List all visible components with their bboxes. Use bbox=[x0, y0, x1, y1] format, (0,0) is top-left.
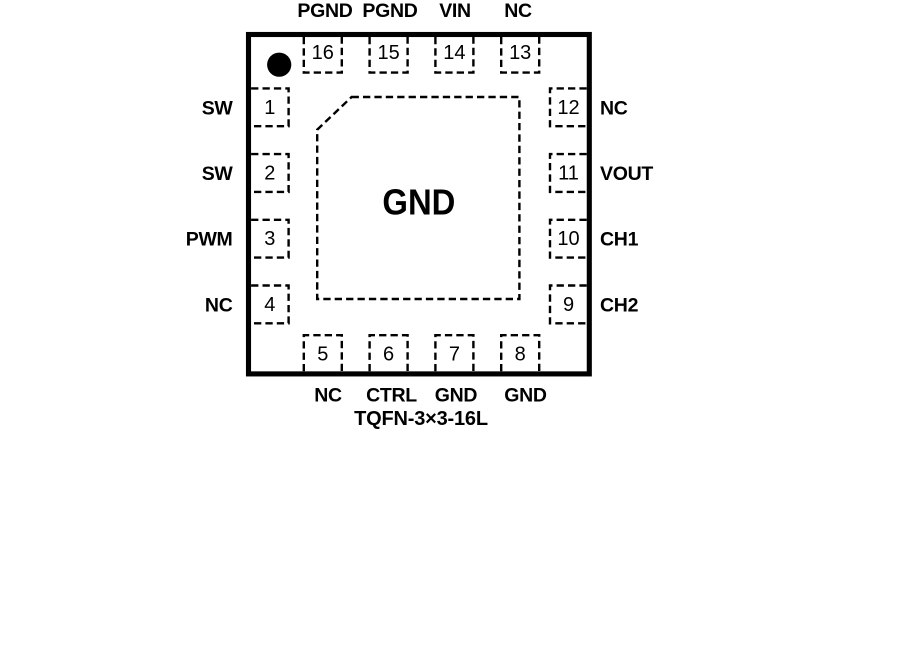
svg-text:SW: SW bbox=[202, 97, 234, 119]
svg-text:CH2: CH2 bbox=[600, 294, 639, 316]
svg-text:PGND: PGND bbox=[297, 0, 352, 22]
svg-text:10: 10 bbox=[557, 228, 579, 250]
svg-text:CTRL: CTRL bbox=[366, 385, 417, 407]
svg-text:11: 11 bbox=[558, 163, 579, 185]
svg-text:NC: NC bbox=[600, 97, 628, 119]
svg-text:NC: NC bbox=[314, 385, 342, 407]
svg-text:PWM: PWM bbox=[186, 229, 233, 251]
svg-text:15: 15 bbox=[377, 42, 399, 64]
svg-text:12: 12 bbox=[557, 97, 579, 119]
svg-text:4: 4 bbox=[264, 294, 275, 316]
svg-text:GND: GND bbox=[382, 182, 455, 223]
svg-text:9: 9 bbox=[563, 294, 574, 316]
svg-text:14: 14 bbox=[443, 42, 465, 64]
svg-text:13: 13 bbox=[509, 42, 531, 64]
svg-text:8: 8 bbox=[515, 344, 526, 366]
svg-text:TQFN-3×3-16L: TQFN-3×3-16L bbox=[354, 408, 488, 430]
svg-text:2: 2 bbox=[264, 163, 275, 185]
svg-text:5: 5 bbox=[317, 344, 328, 366]
svg-text:GND: GND bbox=[504, 385, 547, 407]
svg-text:VIN: VIN bbox=[439, 0, 471, 22]
svg-text:PGND: PGND bbox=[362, 0, 417, 22]
svg-text:CH1: CH1 bbox=[600, 229, 639, 251]
svg-text:16: 16 bbox=[312, 42, 334, 64]
svg-text:GND: GND bbox=[435, 385, 478, 407]
svg-text:SW: SW bbox=[202, 163, 234, 185]
svg-text:7: 7 bbox=[449, 344, 460, 366]
svg-text:3: 3 bbox=[264, 228, 275, 250]
svg-text:1: 1 bbox=[264, 97, 275, 119]
svg-text:NC: NC bbox=[205, 294, 233, 316]
svg-text:6: 6 bbox=[383, 344, 394, 366]
svg-text:NC: NC bbox=[504, 0, 532, 22]
svg-text:VOUT: VOUT bbox=[600, 163, 653, 185]
